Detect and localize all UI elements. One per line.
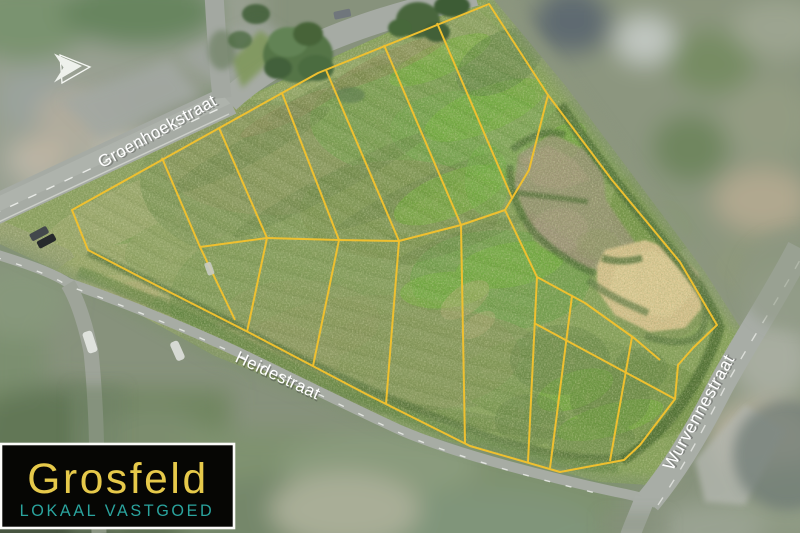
svg-text:Grosfeld: Grosfeld	[27, 456, 208, 503]
svg-text:LOKAAL VASTGOED: LOKAAL VASTGOED	[20, 502, 215, 520]
